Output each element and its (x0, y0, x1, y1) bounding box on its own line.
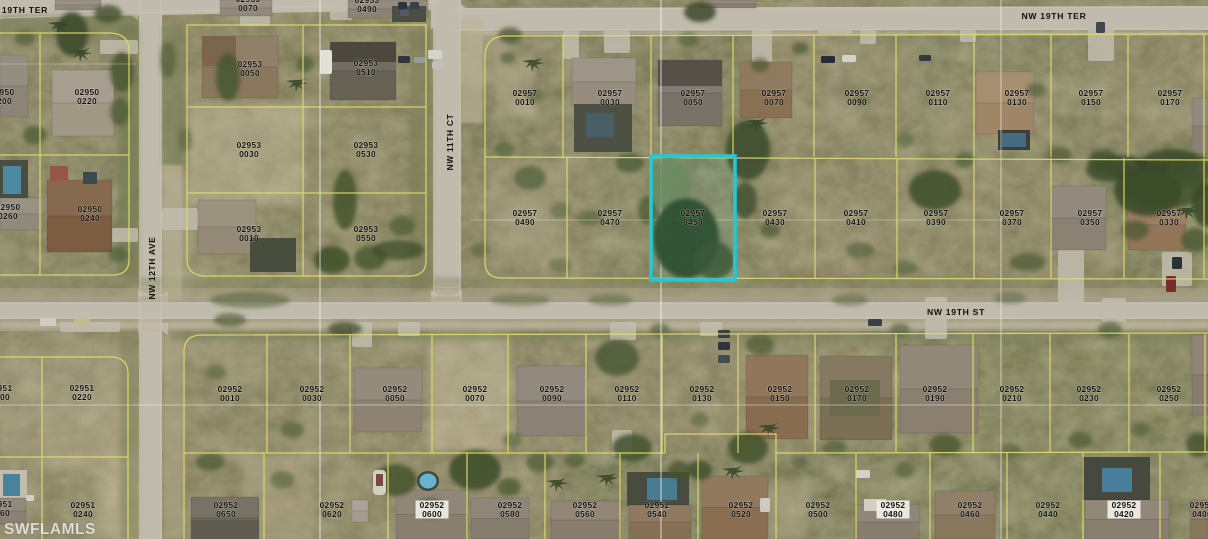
svg-text:029510220: 029510220 (70, 383, 95, 402)
svg-text:029520560: 029520560 (573, 500, 598, 519)
svg-text:029530510: 029530510 (354, 58, 379, 77)
svg-text:029570430: 029570430 (763, 208, 788, 227)
svg-text:029520190: 029520190 (923, 384, 948, 403)
svg-text:NW 19TH TER: NW 19TH TER (1022, 11, 1087, 21)
svg-text:029570370: 029570370 (1000, 208, 1025, 227)
svg-text:029520210: 029520210 (1000, 384, 1025, 403)
svg-text:029520540: 029520540 (645, 500, 670, 519)
svg-text:SWFLAMLS: SWFLAMLS (4, 521, 96, 538)
svg-text:029520010: 029520010 (218, 384, 243, 403)
svg-text:NW 12TH AVE: NW 12TH AVE (147, 236, 157, 299)
svg-text:029520650: 029520650 (214, 500, 239, 519)
svg-text:029530490: 029530490 (355, 0, 380, 14)
svg-text:029570350: 029570350 (1078, 208, 1103, 227)
svg-text:029570130: 029570130 (1005, 88, 1030, 107)
svg-text:029520050: 029520050 (383, 384, 408, 403)
svg-text:029520460: 029520460 (958, 500, 983, 519)
svg-text:029570110: 029570110 (926, 88, 951, 107)
svg-text:029520580: 029520580 (498, 500, 523, 519)
svg-text:029520090: 029520090 (540, 384, 565, 403)
svg-text:029570170: 029570170 (1158, 88, 1183, 107)
svg-text:029520250: 029520250 (1157, 384, 1182, 403)
svg-text:029500220: 029500220 (75, 87, 100, 106)
svg-text:029530010: 029530010 (237, 224, 262, 243)
svg-text:029520600: 029520600 (420, 500, 445, 519)
svg-text:029570470: 029570470 (598, 208, 623, 227)
svg-text:029570450: 029570450 (681, 208, 706, 227)
svg-text:029520150: 029520150 (768, 384, 793, 403)
svg-text:029570030: 029570030 (598, 88, 623, 107)
svg-text:029520500: 029520500 (806, 500, 831, 519)
svg-text:029530050: 029530050 (238, 59, 263, 78)
svg-text:029570490: 029570490 (513, 208, 538, 227)
svg-text:029500260: 029500260 (0, 202, 20, 221)
svg-text:029520520: 029520520 (729, 500, 754, 519)
svg-text:029520110: 029520110 (615, 384, 640, 403)
svg-text:029570050: 029570050 (681, 88, 706, 107)
svg-text:029520440: 029520440 (1036, 500, 1061, 519)
svg-text:029530530: 029530530 (354, 140, 379, 159)
svg-text:NW 19TH ST: NW 19TH ST (927, 307, 985, 317)
svg-text:029570070: 029570070 (762, 88, 787, 107)
svg-text:029570010: 029570010 (513, 88, 538, 107)
svg-text:029520070: 029520070 (463, 384, 488, 403)
svg-text:029530550: 029530550 (354, 224, 379, 243)
svg-text:029520400: 029520400 (1190, 500, 1208, 519)
svg-text:029520170: 029520170 (845, 384, 870, 403)
svg-text:029520420: 029520420 (1112, 500, 1137, 519)
svg-text:029570090: 029570090 (845, 88, 870, 107)
svg-text:029530070: 029530070 (236, 0, 261, 13)
svg-text:029500240: 029500240 (78, 204, 103, 223)
svg-text:029570410: 029570410 (844, 208, 869, 227)
svg-text:029520620: 029520620 (320, 500, 345, 519)
svg-text:NW 11TH CT: NW 11TH CT (445, 113, 455, 170)
svg-text:029520480: 029520480 (881, 500, 906, 519)
svg-text:029530030: 029530030 (237, 140, 262, 159)
svg-text:029520030: 029520030 (300, 384, 325, 403)
svg-text:19TH TER: 19TH TER (2, 5, 48, 15)
svg-text:029520130: 029520130 (690, 384, 715, 403)
svg-text:029520230: 029520230 (1077, 384, 1102, 403)
svg-text:029570150: 029570150 (1079, 88, 1104, 107)
svg-text:029570330: 029570330 (1157, 208, 1182, 227)
svg-text:029570390: 029570390 (924, 208, 949, 227)
svg-text:029510240: 029510240 (71, 500, 96, 519)
